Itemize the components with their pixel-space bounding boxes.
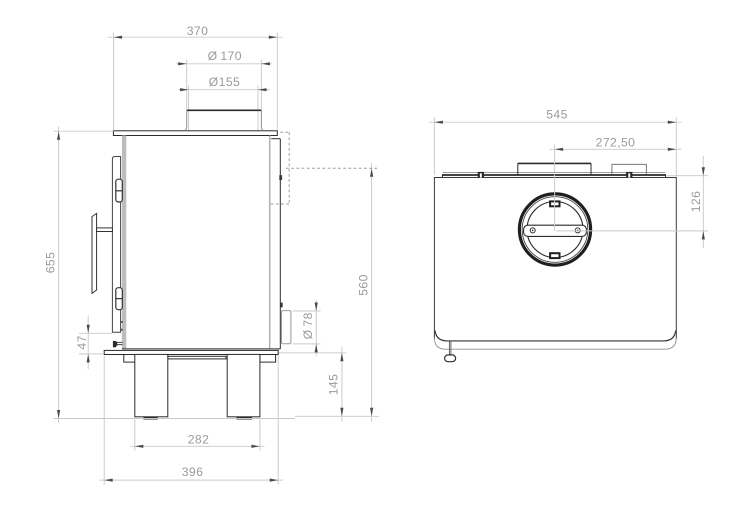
svg-text:Ø155: Ø155 (209, 75, 240, 89)
svg-text:47: 47 (75, 335, 89, 349)
svg-text:396: 396 (182, 465, 204, 479)
svg-text:282: 282 (188, 432, 210, 446)
svg-text:Ø 78: Ø 78 (301, 312, 315, 339)
svg-text:560: 560 (357, 274, 371, 296)
svg-text:145: 145 (327, 374, 341, 396)
svg-text:272,50: 272,50 (596, 136, 636, 150)
svg-text:Ø 170: Ø 170 (208, 49, 242, 63)
svg-text:370: 370 (187, 24, 209, 38)
svg-text:655: 655 (43, 252, 57, 274)
svg-text:545: 545 (546, 107, 568, 121)
svg-text:126: 126 (689, 191, 703, 213)
